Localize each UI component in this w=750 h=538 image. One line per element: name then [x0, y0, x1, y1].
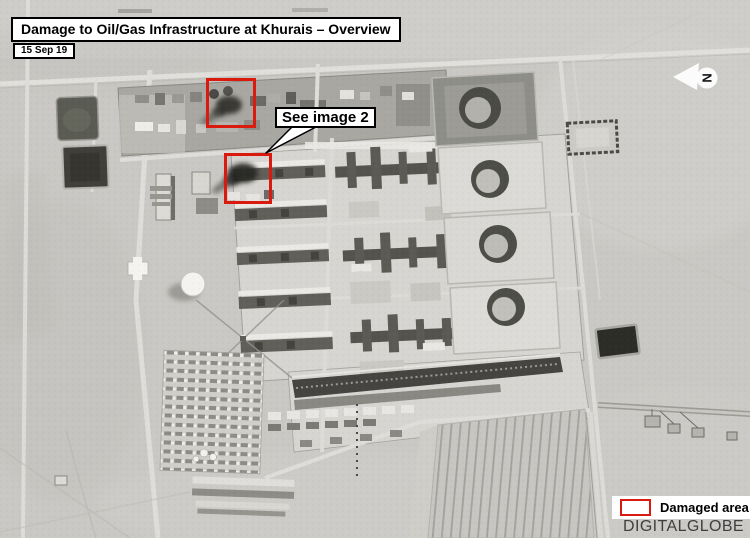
damage-marker-north [206, 78, 256, 128]
digitalglobe-watermark: DIGITALGLOBE [610, 518, 748, 536]
damage-marker-south [224, 153, 272, 204]
legend: Damaged area [612, 496, 750, 519]
legend-label: Damaged area [660, 500, 749, 515]
callout-see-image-2: See image 2 [275, 107, 376, 128]
date-label: 15 Sep 19 [13, 43, 75, 59]
north-arrow-triangle [673, 63, 699, 90]
north-arrow: N [666, 56, 728, 98]
satellite-photo [0, 0, 750, 538]
north-label: N [700, 73, 715, 82]
callout-pointer [258, 126, 328, 160]
photo-grain [0, 0, 750, 538]
annotated-satellite-overview: Damage to Oil/Gas Infrastructure at Khur… [0, 0, 750, 538]
title-box: Damage to Oil/Gas Infrastructure at Khur… [11, 17, 401, 42]
damaged-area-swatch [620, 499, 651, 516]
